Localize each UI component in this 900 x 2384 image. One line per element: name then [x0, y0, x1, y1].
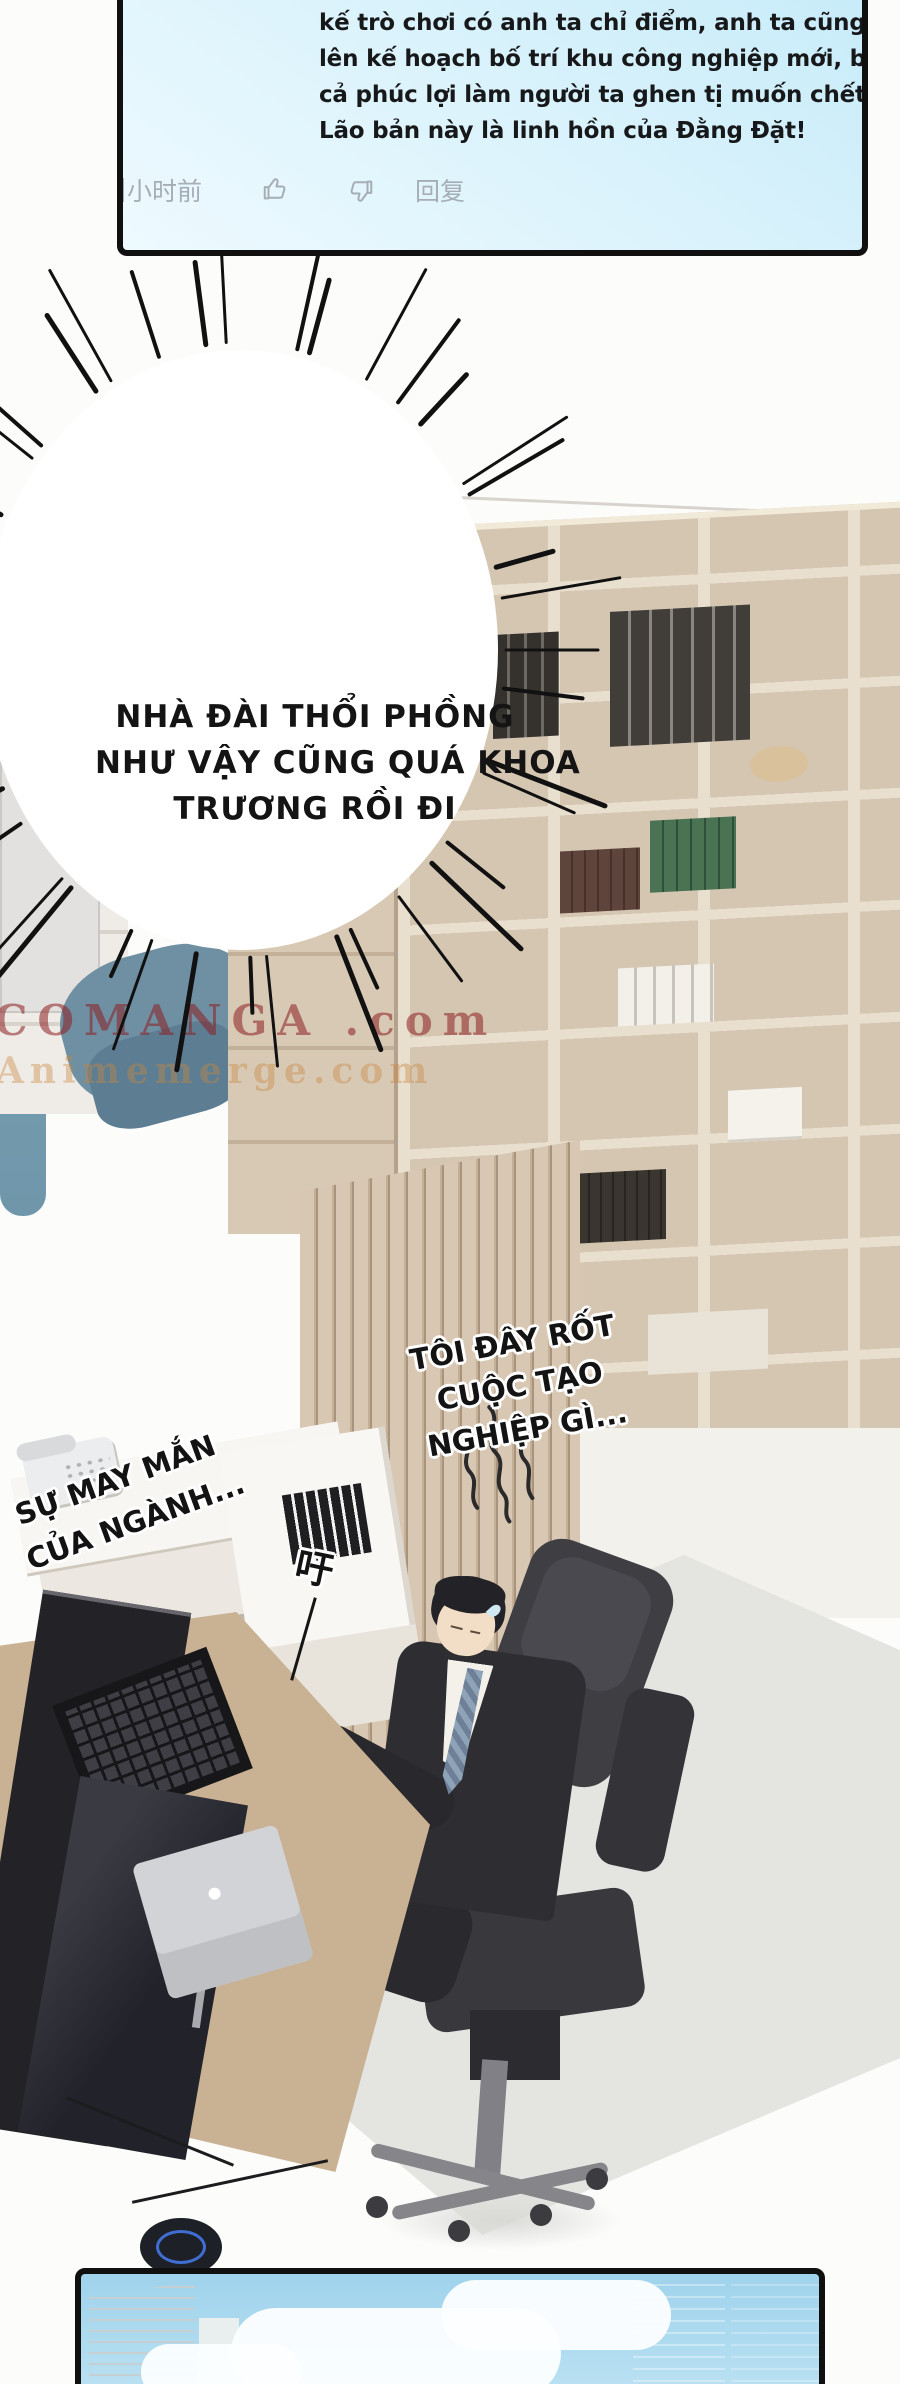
comment-line-1: kế trò chơi có anh ta chỉ điểm, anh ta c…	[319, 10, 868, 36]
white-boxes	[728, 1087, 802, 1143]
maroon-books	[560, 847, 640, 913]
cloud	[441, 2280, 671, 2350]
green-books	[650, 816, 736, 893]
comment-line-4: Lão bản này là linh hồn của Đằng Đặt!	[319, 118, 806, 144]
power-adapter-ring	[156, 2230, 206, 2264]
burst-line-2: NHƯ VẬY CŨNG QUÁ KHOA	[95, 740, 535, 786]
watermark-line-1: COMANGA .com	[0, 996, 497, 1045]
glass-tower	[731, 2274, 825, 2384]
thumbs-down-icon[interactable]	[345, 176, 375, 206]
comment-panel: kế trò chơi có anh ta chỉ điểm, anh ta c…	[117, 0, 868, 256]
comic-page: NHÀ ĐÀI THỔI PHỒNG NHƯ VẬY CŨNG QUÁ KHOA…	[0, 0, 900, 2384]
burst-line-3: TRƯƠNG RỒI ĐI	[95, 786, 535, 832]
magazine-boxes	[618, 963, 714, 1026]
storage-box	[648, 1309, 768, 1375]
chair-wheel	[366, 2196, 388, 2218]
comment-line-2: lên kế hoạch bố trí khu công nghiệp mới,…	[319, 46, 868, 72]
chair-wheel	[586, 2168, 608, 2190]
man-head	[424, 1571, 509, 1666]
comment-line-3: cả phúc lợi làm người ta ghen tị muốn ch…	[319, 82, 868, 108]
cable	[132, 2159, 328, 2204]
office-scene-art	[0, 212, 900, 2272]
chair-wheel	[448, 2220, 470, 2242]
burst-line-1: NHÀ ĐÀI THỔI PHỒNG	[95, 694, 535, 740]
comment-footer: 小时前 回复	[123, 172, 862, 208]
jar	[750, 745, 808, 784]
laptop-logo	[207, 1886, 222, 1901]
reply-button[interactable]: 回复	[415, 172, 465, 208]
cloud	[141, 2344, 301, 2384]
chair-wheel	[530, 2204, 552, 2226]
watermark-line-2: Animemerge.com	[0, 1050, 433, 1092]
comment-timestamp: 小时前	[127, 172, 202, 208]
burst-bubble-text: NHÀ ĐÀI THỔI PHỒNG NHƯ VẬY CŨNG QUÁ KHOA…	[95, 694, 535, 832]
thumbs-up-icon[interactable]	[261, 174, 291, 204]
bottom-panel	[75, 2268, 825, 2384]
binders	[610, 605, 750, 747]
marble-panel	[0, 734, 100, 1013]
dark-books	[566, 1169, 666, 1244]
